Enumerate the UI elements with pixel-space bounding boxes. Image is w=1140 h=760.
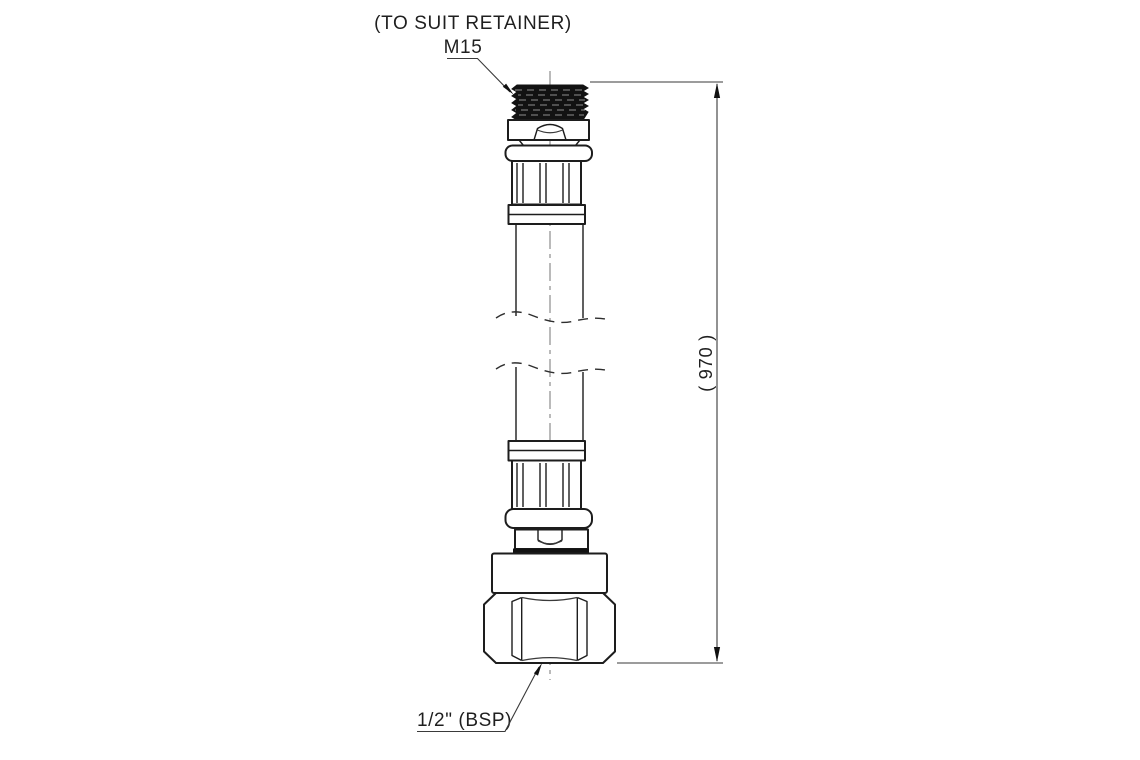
break-line-upper xyxy=(496,312,605,323)
bottom-crimp-sleeve xyxy=(512,461,581,510)
note-m15: (TO SUIT RETAINER) M15 xyxy=(374,13,572,95)
nut-cylinder-section xyxy=(492,554,607,594)
top-male-thread xyxy=(512,85,588,120)
dimension-arrow-down xyxy=(714,647,720,662)
top-fitting-body xyxy=(508,120,589,146)
top-note-line2: M15 xyxy=(444,37,483,58)
technical-drawing-canvas: ( 970 ) (TO SUIT RETAINER) M15 1/2" (BSP… xyxy=(0,0,1140,760)
hex-nut xyxy=(484,593,615,663)
top-crimp-collar xyxy=(506,146,593,162)
bottom-crimp-collar xyxy=(506,509,593,528)
note-bsp: 1/2" (BSP) xyxy=(417,663,542,732)
leader-line-m15 xyxy=(447,59,510,93)
bottom-note: 1/2" (BSP) xyxy=(417,710,512,731)
leader-arrow-bsp xyxy=(534,663,542,676)
hex-nut-outline xyxy=(484,593,615,663)
bottom-nipple xyxy=(515,530,588,550)
dimension-text: ( 970 ) xyxy=(695,334,716,392)
top-note-line1: (TO SUIT RETAINER) xyxy=(374,13,572,34)
bottom-hose-band xyxy=(509,441,586,461)
dimension-970: ( 970 ) xyxy=(590,82,723,663)
top-hose-band xyxy=(509,205,586,224)
drawing-sheet: ( 970 ) (TO SUIT RETAINER) M15 1/2" (BSP… xyxy=(0,0,1140,760)
top-crimp-sleeve xyxy=(512,161,581,205)
dimension-arrow-up xyxy=(714,83,720,98)
